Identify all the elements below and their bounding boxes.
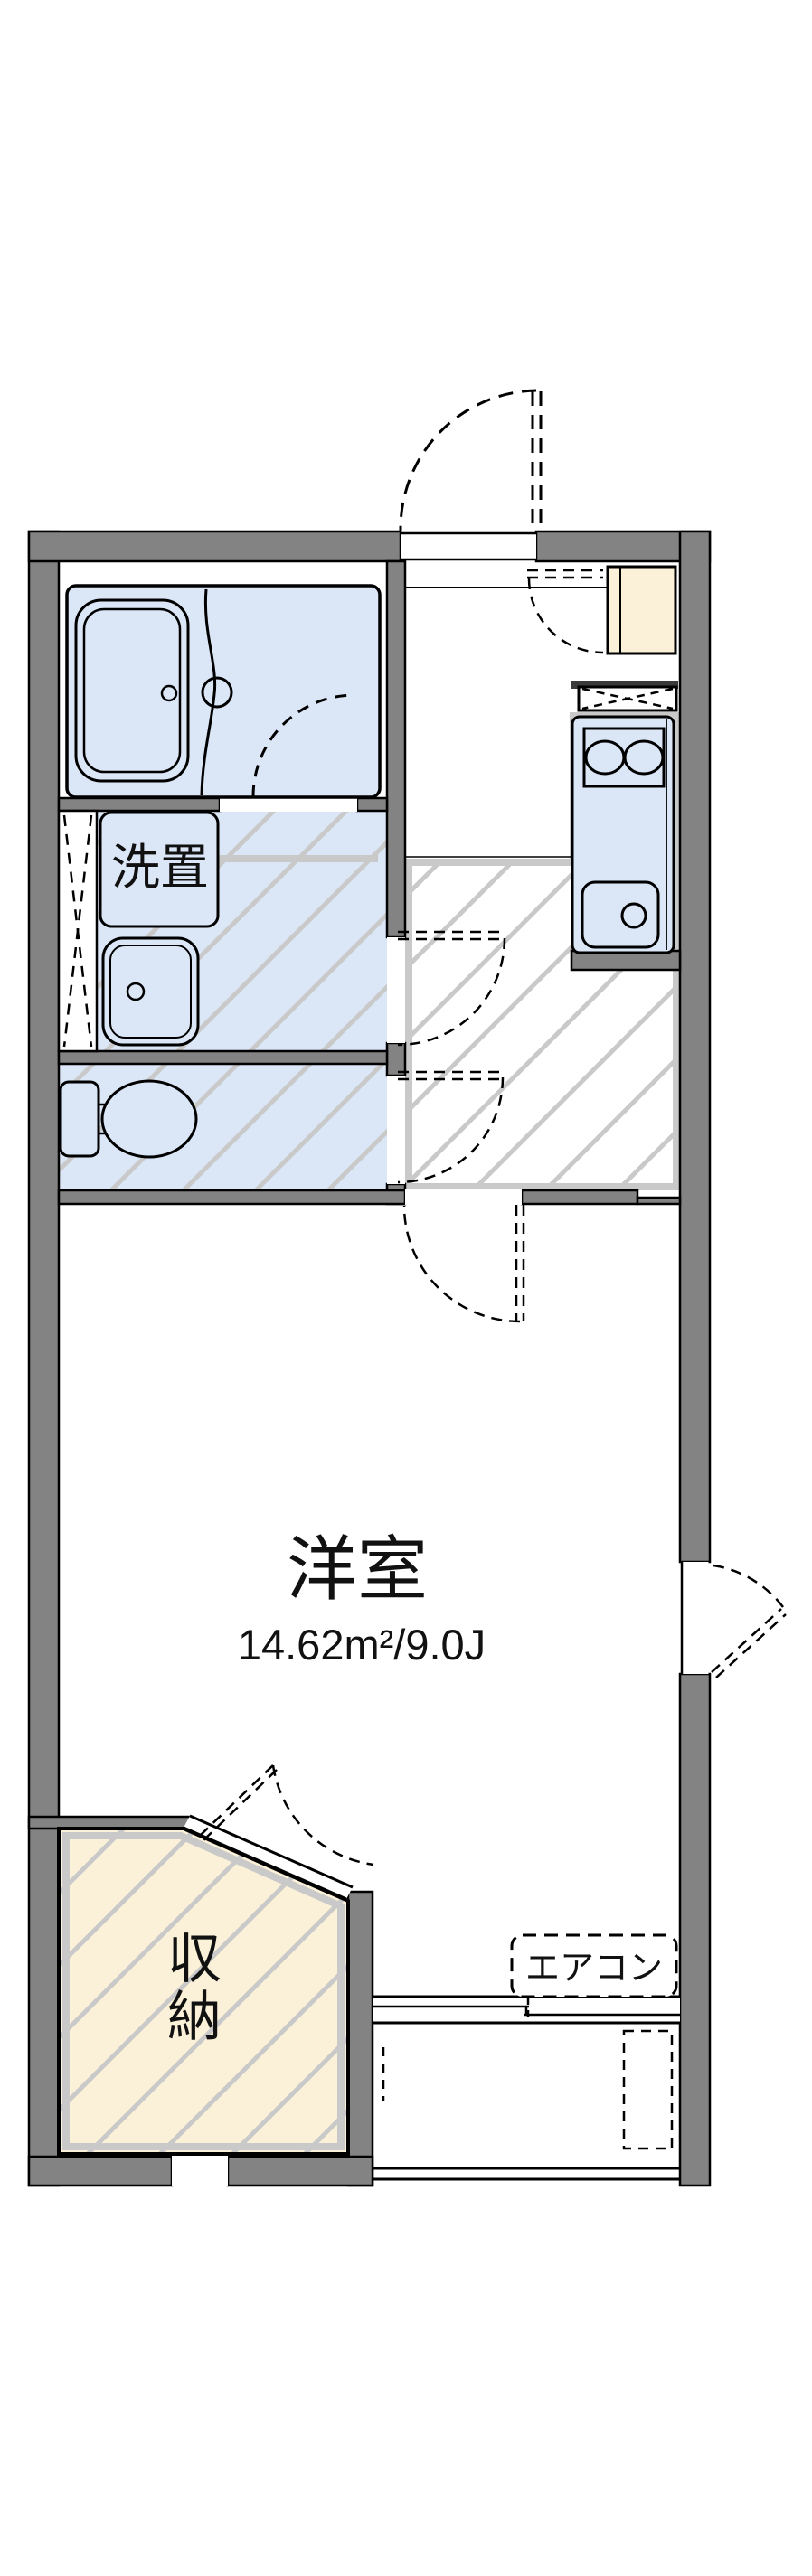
label-main-room-area: 14.62m²/9.0J [238, 1621, 486, 1669]
wall-bottom-center [228, 2157, 373, 2186]
wall-kitchen-room-left [522, 1190, 637, 1204]
wall-left [29, 531, 59, 2186]
bathroom-door-opening [220, 797, 357, 812]
wall-kitchen-room-right [637, 1198, 680, 1204]
label-storage-char-2: 納 [167, 1987, 222, 2047]
right-door-arc [713, 1565, 783, 1607]
wall-divider-vertical-b [387, 1043, 405, 1076]
wall-bath-washroom-right [357, 798, 387, 811]
entry-opening [401, 533, 536, 560]
label-storage-char-1: 収 [167, 1929, 222, 1989]
toilet [61, 1081, 196, 1157]
label-washer-space: 洗置 [111, 841, 209, 895]
bathroom-unit-box [67, 586, 380, 797]
wall-right-lower [680, 1674, 710, 2186]
right-door-leaf-b [716, 1614, 786, 1678]
wall-bottom-left [29, 2157, 172, 2186]
toilet-bowl [102, 1081, 196, 1157]
wall-washroom-toilet [59, 1051, 387, 1064]
bathroom-unit [67, 586, 380, 797]
shoe-cabinet [608, 567, 675, 653]
bottom-wall-gap [172, 2156, 228, 2186]
washroom-door-opening [387, 937, 405, 1043]
entry-door-arc [401, 390, 536, 531]
main-room-door-opening [405, 1189, 522, 1205]
right-door-leaf-a [712, 1609, 781, 1672]
wall-bath-washroom-left [59, 798, 220, 811]
label-aircon: エアコン [525, 1950, 663, 1988]
toilet-door-opening [387, 1076, 405, 1184]
toilet-tank [61, 1082, 99, 1156]
floor-plan-drawing: 洗置 [0, 0, 812, 2576]
wall-right-upper [680, 531, 710, 1562]
wash-basin-outer [103, 938, 198, 1045]
wall-divider-vertical-a [387, 561, 405, 937]
right-door-opening [682, 1562, 709, 1674]
floor-plan-page: 洗置 [0, 0, 812, 2576]
wall-top-left [29, 531, 401, 561]
label-main-room: 洋室 [287, 1529, 428, 1609]
wall-toilet-room [59, 1190, 405, 1204]
wall-storage-right [348, 1892, 373, 2186]
aircon: エアコン [512, 1935, 676, 1997]
